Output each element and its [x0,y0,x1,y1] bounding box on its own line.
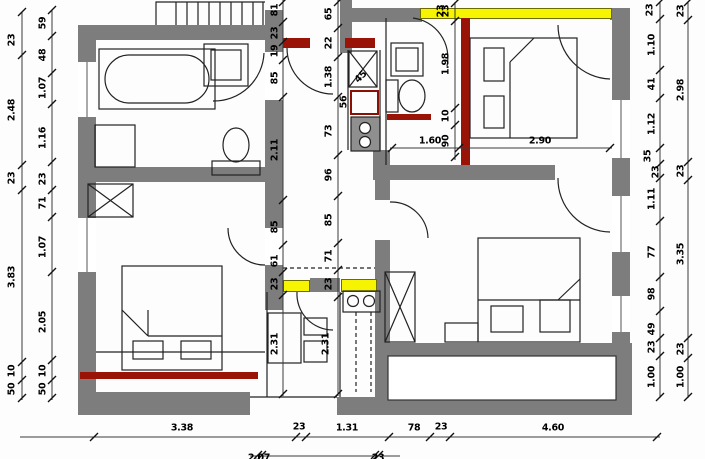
dimension-label: 23 [38,173,49,186]
dimension-label: 50 [38,383,49,396]
dimension-label: 23 [435,422,448,433]
dimension-label: 23 [676,5,687,18]
dimension-label: 1.60 [419,136,441,147]
stove [351,117,380,151]
dashed-counter-line [356,312,371,392]
sink-unit [351,91,378,114]
dimension-label: 98 [647,288,658,301]
dimension-label: 2.11 [270,139,281,161]
floor-plan-canvas: 23 2.48 23 3.83 10 50 59 48 1.07 1.16 23… [0,0,705,459]
dimension-label: 2.98 [676,79,687,101]
toilet-cistern [212,161,260,175]
dimension-label: 73 [324,125,335,138]
dimension-label: 1.12 [647,113,658,135]
dimension-label: 1.98 [441,53,452,75]
dimension-label: 71 [38,197,49,210]
washbasin-bowl [396,48,418,71]
door-arc [213,53,264,101]
dimension-label: 1.07 [38,236,49,258]
dimension-label: 1.00 [647,366,658,388]
dimension-label: 3.83 [7,266,18,288]
dimension-label: 49 [647,323,658,336]
dimension-label: 78 [408,423,421,434]
bed [470,38,577,138]
dimension-label: 23 [7,172,18,185]
dimension-label: 10 [441,110,452,123]
dimension-label: 23 [645,4,656,17]
dimension-label: 71 [324,250,335,263]
dimension-label: 2.90 [529,136,551,147]
dimension-label: 81 [270,4,281,17]
dimension-label: 59 [38,17,49,30]
dimension-label: 23 [293,422,306,433]
dimension-label: 10 [38,365,49,378]
dimension-label: 23 [676,165,687,178]
dimension-label: 65 [324,8,335,21]
dimension-label: 1.10 [647,34,658,56]
dimension-label: 22 [324,37,335,50]
dimension-label: 2.07 [248,453,270,459]
kitchen-sink [343,291,380,312]
dimension-label: 50 [7,383,18,396]
dimension-label: 23 [436,5,447,18]
dimension-label: 23 [372,453,385,459]
dimension-label: 23 [270,278,281,291]
dimension-label: 2.48 [7,99,18,121]
dimension-label: 56 [339,96,350,109]
dimension-label: 23 [7,34,18,47]
bathtub-basin [105,55,209,103]
door-arc [558,25,610,79]
dimension-label: 35 [643,150,654,163]
dimension-label: 1.38 [324,66,335,88]
dimension-label: 77 [647,246,658,259]
dimension-label: 2.31 [270,333,281,355]
dimension-label: 1.31 [336,423,358,434]
dimension-label: 1.07 [38,77,49,99]
toilet-cistern [386,80,398,112]
cabinet [95,125,135,167]
dimension-label: 1.11 [647,188,658,210]
door-arc [558,178,610,232]
dimension-label: 23 [647,341,658,354]
dimension-label: 41 [647,78,658,91]
toilet [223,128,249,162]
wardrobe-x [88,184,133,217]
dimension-label: 19 [270,45,281,58]
bed [122,266,222,370]
dimension-label: 2.31 [321,333,332,355]
dimension-label: 90 [441,135,452,148]
dimension-label: 23 [676,343,687,356]
floor-plan-linework [0,0,705,459]
dimension-label: 85 [324,214,335,227]
nightstand [445,323,478,342]
door-arc [228,228,265,265]
bed [478,238,580,342]
door-arc [390,202,428,238]
dimension-label: 85 [270,221,281,234]
dimension-label: 1.16 [38,127,49,149]
dimension-label: 3.35 [676,243,687,265]
toilet [399,80,425,112]
dimension-label: 23 [651,166,662,179]
dimension-label: 96 [324,169,335,182]
balcony [388,356,616,400]
dimension-label: 23 [324,278,335,291]
dimension-label: 61 [270,255,281,268]
dimension-label: 23 [270,27,281,40]
dimension-label: 85 [270,72,281,85]
dimension-label: 10 [7,365,18,378]
wardrobe-x [385,272,415,342]
dimension-label: 4.60 [542,423,564,434]
dimension-label: 3.38 [171,423,193,434]
stairs [156,2,265,25]
dimension-label: 2.05 [38,311,49,333]
dimension-label: 48 [38,49,49,62]
dimension-label: 1.00 [676,366,687,388]
